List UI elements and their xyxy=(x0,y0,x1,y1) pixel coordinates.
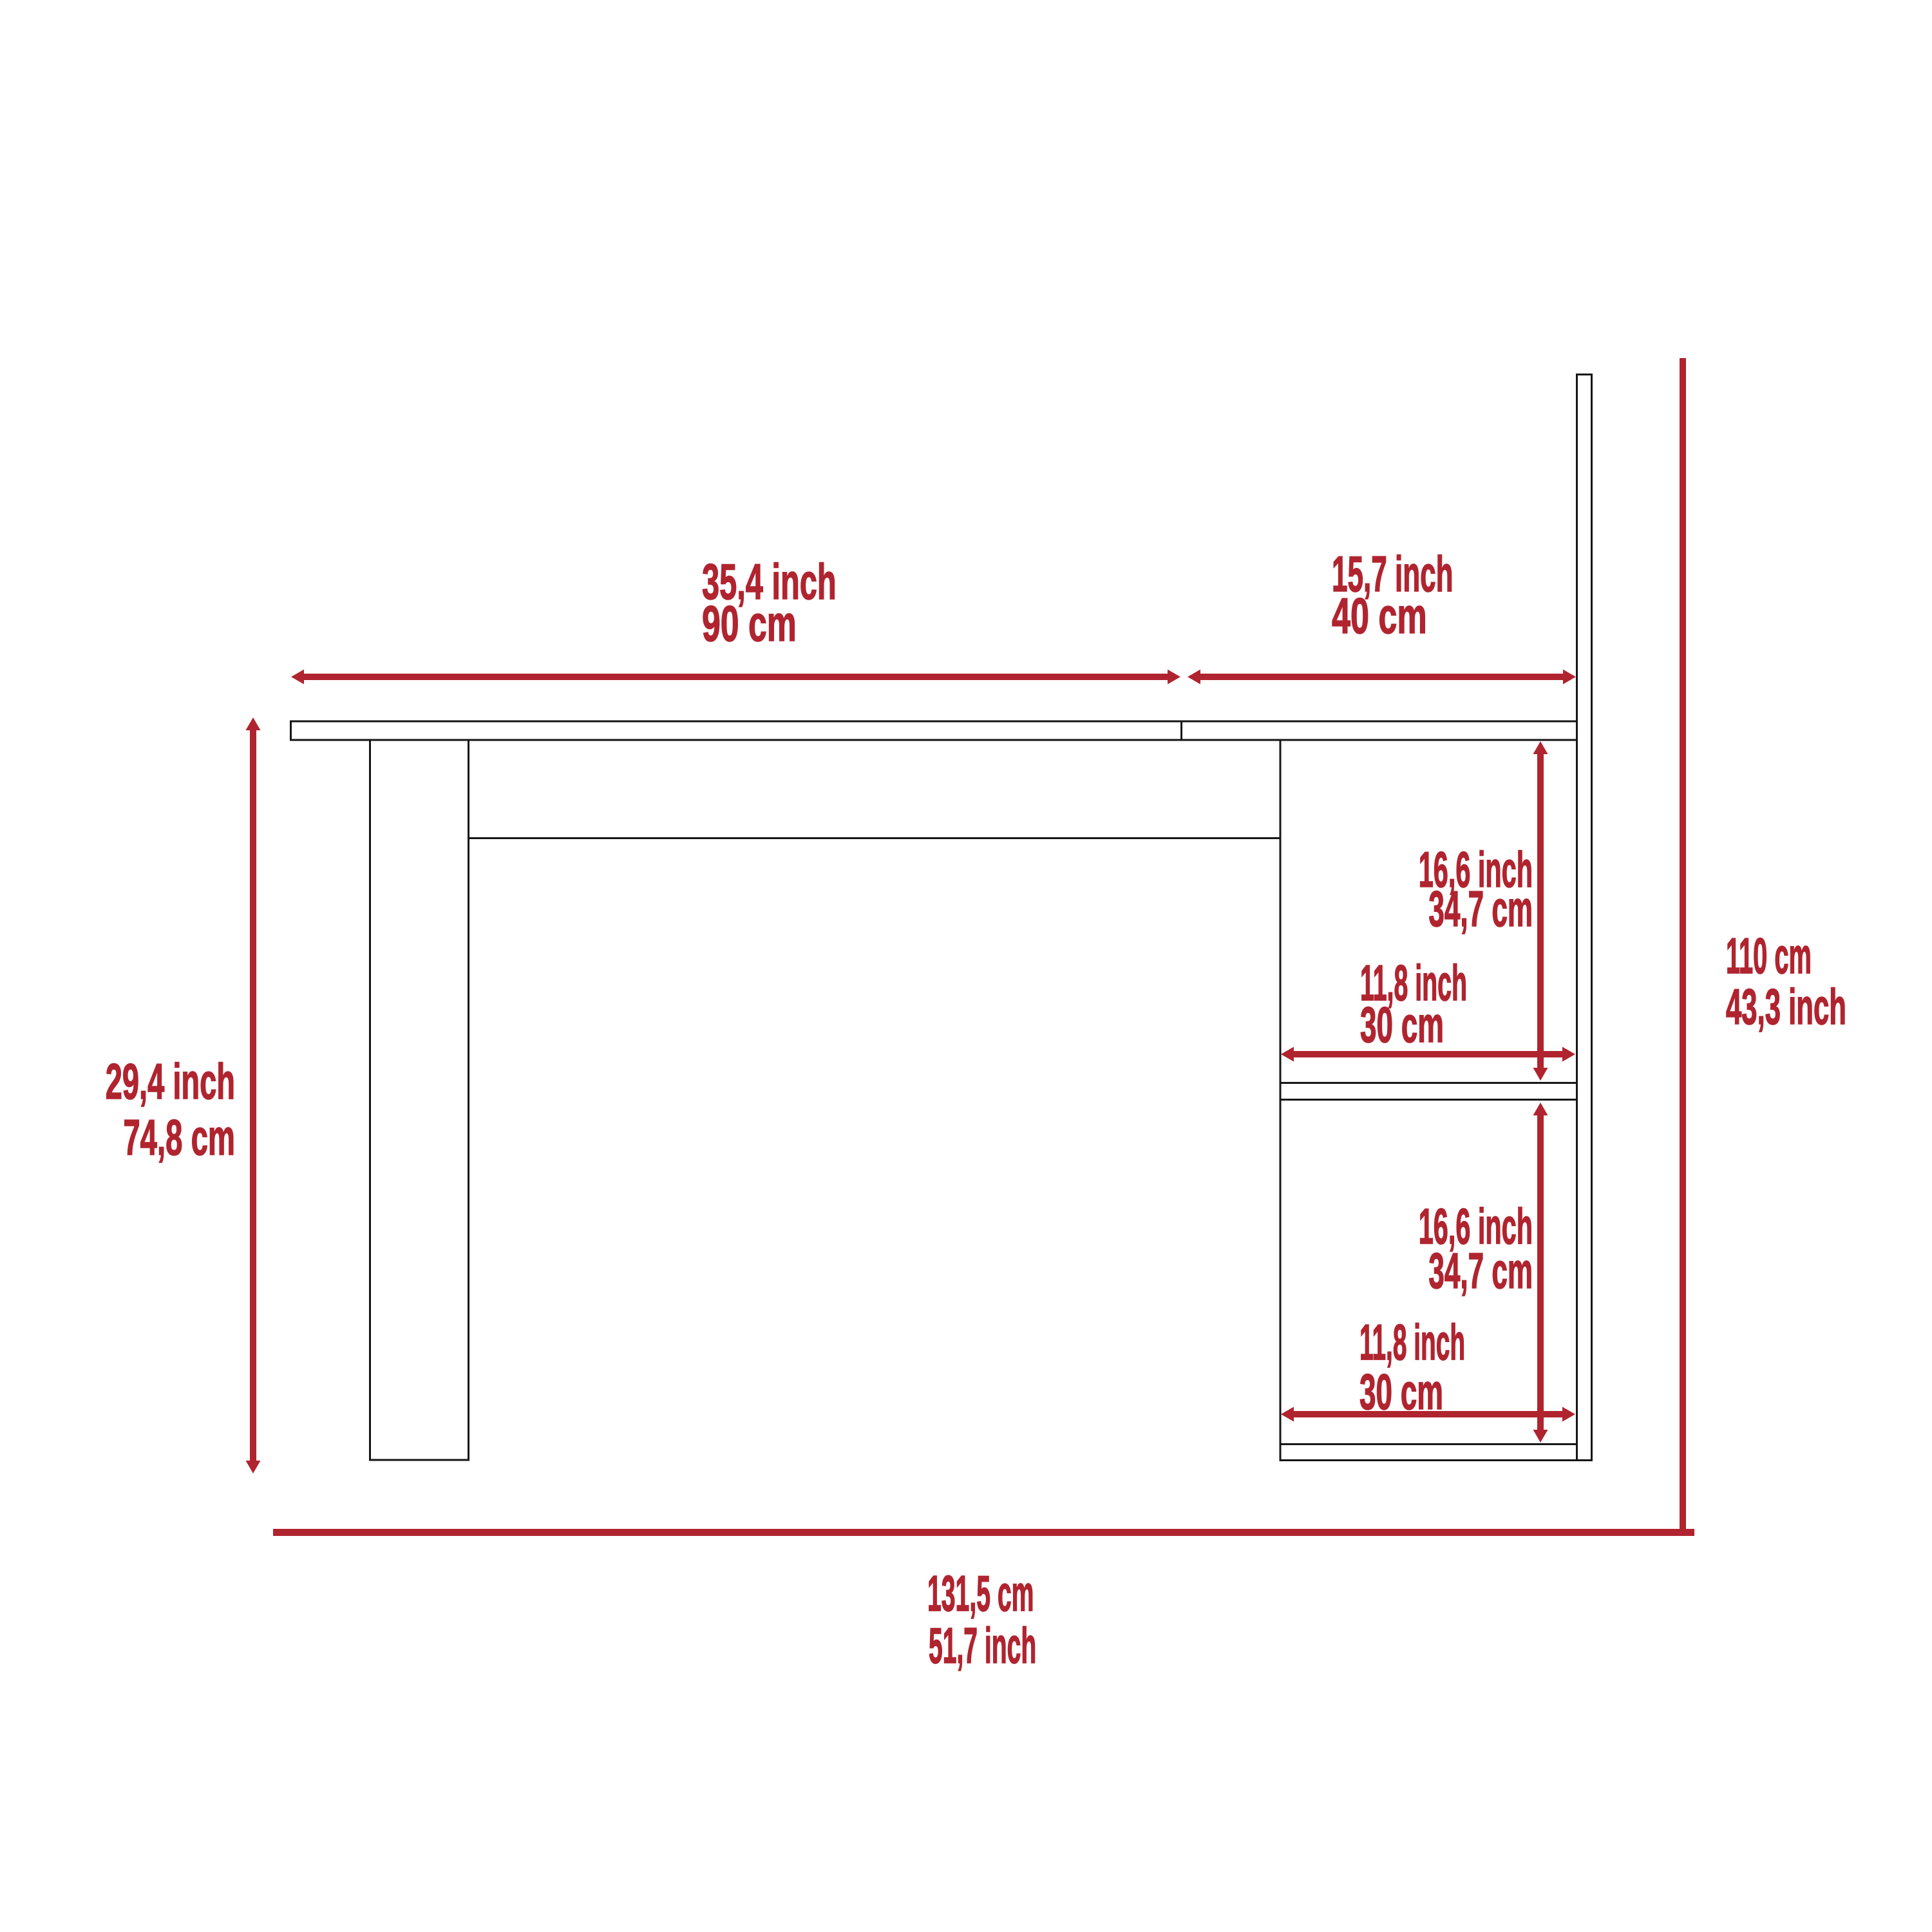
svg-text:51,7 inch: 51,7 inch xyxy=(929,1618,1036,1674)
svg-text:30 cm: 30 cm xyxy=(1359,1363,1443,1420)
svg-text:30 cm: 30 cm xyxy=(1360,996,1444,1053)
svg-text:90 cm: 90 cm xyxy=(702,596,797,652)
svg-text:29,4 inch: 29,4 inch xyxy=(106,1054,235,1110)
svg-text:11,8 inch: 11,8 inch xyxy=(1359,1314,1465,1370)
svg-text:40 cm: 40 cm xyxy=(1332,588,1427,644)
svg-text:34,7 cm: 34,7 cm xyxy=(1428,1244,1533,1299)
svg-text:110 cm: 110 cm xyxy=(1726,929,1812,985)
svg-text:74,8 cm: 74,8 cm xyxy=(123,1110,235,1166)
svg-text:34,7 cm: 34,7 cm xyxy=(1428,882,1533,937)
svg-text:131,5 cm: 131,5 cm xyxy=(927,1566,1034,1622)
svg-text:43,3 inch: 43,3 inch xyxy=(1726,980,1846,1035)
